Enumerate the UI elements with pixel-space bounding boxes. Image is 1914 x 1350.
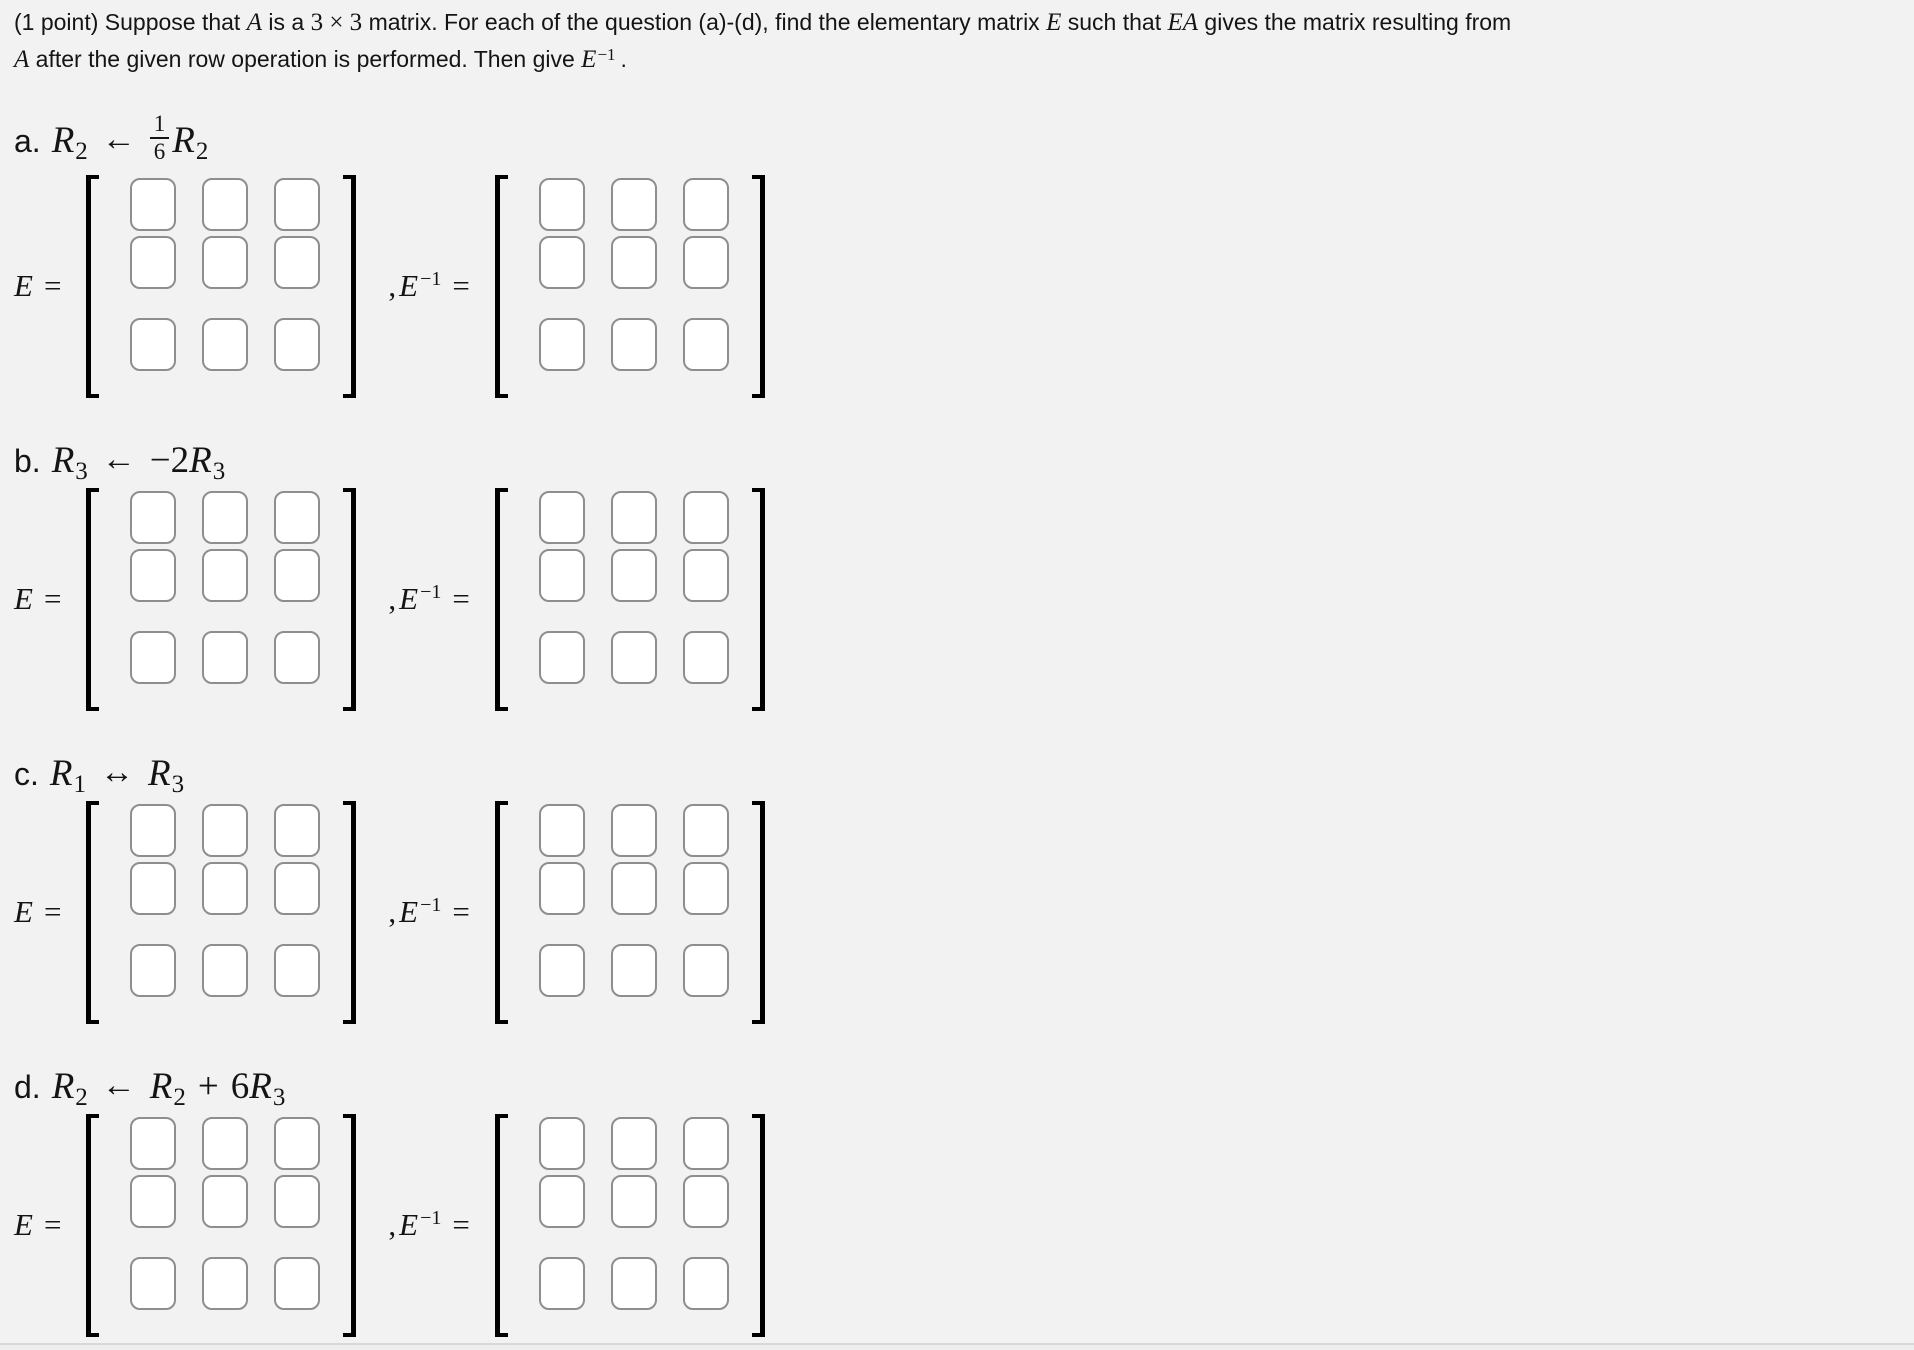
part-b: b.R3←−2R3 E= ,E−1=	[14, 442, 1914, 711]
matrix-cell-input[interactable]	[539, 1257, 585, 1310]
matrix-left-bracket	[86, 488, 99, 711]
statement-text: matrix. For each of the question (a)-(d)…	[362, 9, 1046, 35]
part-letter: d.	[14, 1069, 41, 1105]
math-subscript: 3	[213, 458, 226, 485]
matrix-cell-input[interactable]	[611, 1175, 657, 1228]
matrix-cell-input[interactable]	[130, 549, 176, 602]
answer-row-d: E= ,E−1=	[14, 1114, 1914, 1337]
matrix-cell-input[interactable]	[130, 318, 176, 371]
matrix-cell-input[interactable]	[611, 236, 657, 289]
matrix-cell-input[interactable]	[683, 862, 729, 915]
matrix-right-bracket	[343, 488, 356, 711]
matrix-cell-input[interactable]	[202, 944, 248, 997]
matrix-cell-input[interactable]	[274, 549, 320, 602]
E-inverse-equals-label: ,E−1=	[388, 1207, 469, 1243]
answer-row-c: E= ,E−1=	[14, 801, 1914, 1024]
matrix-cell-input[interactable]	[202, 549, 248, 602]
matrix-cell-input[interactable]	[274, 318, 320, 371]
problem-statement: (1 point) Suppose that A is a 3 × 3 matr…	[0, 0, 1914, 75]
matrix-cell-input[interactable]	[202, 318, 248, 371]
answer-row-a: E= ,E−1=	[14, 175, 1914, 398]
matrix-cell-input[interactable]	[539, 318, 585, 371]
matrix-left-bracket	[86, 1114, 99, 1337]
matrix-cell-input[interactable]	[274, 944, 320, 997]
matrix-cell-input[interactable]	[130, 944, 176, 997]
math-coefficient: 6	[231, 1066, 250, 1107]
math-symbol-A: A	[247, 9, 262, 36]
matrix-cell-input[interactable]	[683, 1257, 729, 1310]
fraction: 16	[150, 111, 170, 165]
matrix-cell-input[interactable]	[539, 1117, 585, 1170]
matrix-cell-input[interactable]	[202, 631, 248, 684]
math-subscript: 2	[75, 1084, 88, 1111]
math-R: R	[249, 1066, 272, 1107]
part-letter: a.	[14, 123, 41, 159]
left-arrow-icon: ←	[102, 121, 136, 158]
E-inverse-equals-label: ,E−1=	[388, 268, 469, 304]
matrix-cell-input[interactable]	[274, 491, 320, 544]
part-letter: b.	[14, 443, 41, 479]
matrix-cell-input[interactable]	[683, 1117, 729, 1170]
fraction-numerator: 1	[150, 111, 170, 139]
math-subscript: 2	[173, 1084, 186, 1111]
matrix-cell-input[interactable]	[130, 236, 176, 289]
matrix-E-b	[86, 488, 356, 711]
math-symbol-A: A	[14, 46, 29, 73]
matrix-cell-input[interactable]	[539, 1175, 585, 1228]
matrix-cell-input[interactable]	[202, 1117, 248, 1170]
part-d: d.R2←R2+6R3 E= ,E−1=	[14, 1068, 1914, 1337]
math-symbol-EA: EA	[1167, 9, 1198, 36]
part-a: a.R2←16R2 E= ,E−1=	[14, 117, 1914, 398]
matrix-cell-input[interactable]	[274, 862, 320, 915]
matrix-cell-input[interactable]	[539, 862, 585, 915]
math-subscript: 3	[172, 771, 185, 798]
fraction-denominator: 6	[150, 139, 170, 165]
matrix-cell-input[interactable]	[130, 1117, 176, 1170]
matrix-cell-input[interactable]	[202, 862, 248, 915]
part-c: c.R1↔R3 E= ,E−1=	[14, 755, 1914, 1024]
matrix-cell-input[interactable]	[202, 236, 248, 289]
matrix-cell-input[interactable]	[274, 1257, 320, 1310]
matrix-cell-input[interactable]	[130, 178, 176, 231]
matrix-cell-input[interactable]	[683, 318, 729, 371]
matrix-cell-input[interactable]	[130, 1257, 176, 1310]
matrix-left-bracket	[86, 175, 99, 398]
matrix-cell-input[interactable]	[202, 1257, 248, 1310]
matrix-right-bracket	[343, 801, 356, 1024]
matrix-right-bracket	[752, 801, 765, 1024]
matrix-cell-input[interactable]	[130, 804, 176, 857]
matrix-cell-input[interactable]	[611, 549, 657, 602]
matrix-cell-input[interactable]	[611, 491, 657, 544]
matrix-E-a	[86, 175, 356, 398]
matrix-cell-input[interactable]	[683, 1175, 729, 1228]
matrix-cell-input[interactable]	[274, 1117, 320, 1170]
matrix-cell-input[interactable]	[539, 491, 585, 544]
matrix-cell-input[interactable]	[202, 804, 248, 857]
matrix-cell-input[interactable]	[274, 631, 320, 684]
matrix-E-inverse-b	[495, 488, 765, 711]
matrix-right-bracket	[343, 1114, 356, 1337]
math-3x3: 3 × 3	[311, 9, 363, 36]
E-equals-label: E=	[14, 268, 61, 304]
matrix-right-bracket	[752, 488, 765, 711]
matrix-cell-input[interactable]	[274, 804, 320, 857]
matrix-left-bracket	[495, 488, 508, 711]
matrix-E-c	[86, 801, 356, 1024]
matrix-left-bracket	[495, 801, 508, 1024]
matrix-right-bracket	[343, 175, 356, 398]
matrix-cell-input[interactable]	[539, 236, 585, 289]
E-equals-label: E=	[14, 894, 61, 930]
math-symbol-E: E	[581, 46, 596, 73]
E-inverse-equals-label: ,E−1=	[388, 894, 469, 930]
math-R: R	[52, 440, 75, 481]
math-symbol-E: E	[1046, 9, 1061, 36]
E-equals-label: E=	[14, 581, 61, 617]
matrix-cell-input[interactable]	[202, 178, 248, 231]
matrix-cell-input[interactable]	[130, 491, 176, 544]
matrix-left-bracket	[86, 801, 99, 1024]
matrix-left-bracket	[495, 1114, 508, 1337]
matrix-E-inverse-d	[495, 1114, 765, 1337]
row-operation-label-d: d.R2←R2+6R3	[14, 1068, 1914, 1110]
matrix-cell-input[interactable]	[539, 944, 585, 997]
part-letter: c.	[14, 756, 39, 792]
math-R: R	[148, 753, 171, 794]
matrix-right-bracket	[752, 1114, 765, 1337]
matrix-cell-input[interactable]	[611, 178, 657, 231]
matrix-cell-input[interactable]	[130, 1175, 176, 1228]
math-exponent-neg1: −1	[597, 45, 615, 64]
matrix-cell-input[interactable]	[539, 631, 585, 684]
matrix-cell-input[interactable]	[202, 491, 248, 544]
statement-text: (1 point) Suppose that	[14, 9, 247, 35]
matrix-cell-input[interactable]	[130, 631, 176, 684]
statement-text: such that	[1061, 9, 1167, 35]
matrix-cell-input[interactable]	[611, 1117, 657, 1170]
row-operation-label-c: c.R1↔R3	[14, 755, 1914, 797]
math-R: R	[150, 1066, 173, 1107]
statement-text: is a	[262, 9, 311, 35]
matrix-left-bracket	[495, 175, 508, 398]
matrix-cell-input[interactable]	[130, 862, 176, 915]
matrix-cell-input[interactable]	[683, 804, 729, 857]
row-operation-label-b: b.R3←−2R3	[14, 442, 1914, 484]
matrix-cell-input[interactable]	[611, 1257, 657, 1310]
double-arrow-icon: ↔	[100, 754, 134, 791]
matrix-cell-input[interactable]	[683, 549, 729, 602]
matrix-cell-input[interactable]	[611, 631, 657, 684]
matrix-E-d	[86, 1114, 356, 1337]
left-arrow-icon: ←	[102, 1067, 136, 1104]
matrix-cell-input[interactable]	[274, 178, 320, 231]
statement-text: after the given row operation is perform…	[29, 46, 581, 72]
math-subscript: 3	[273, 1084, 286, 1111]
matrix-cell-input[interactable]	[611, 862, 657, 915]
statement-text: .	[621, 46, 627, 72]
statement-text: gives the matrix resulting from	[1198, 9, 1511, 35]
math-subscript: 2	[196, 138, 209, 165]
math-R: R	[52, 1066, 75, 1107]
math-coefficient: −2	[150, 440, 189, 481]
matrix-cell-input[interactable]	[274, 236, 320, 289]
math-R: R	[189, 440, 212, 481]
math-R: R	[172, 120, 195, 161]
math-R: R	[50, 753, 73, 794]
math-subscript: 2	[75, 138, 88, 165]
matrix-E-inverse-c	[495, 801, 765, 1024]
matrix-cell-input[interactable]	[274, 1175, 320, 1228]
matrix-cell-input[interactable]	[683, 631, 729, 684]
matrix-cell-input[interactable]	[683, 491, 729, 544]
plus-sign: +	[198, 1066, 219, 1107]
matrix-cell-input[interactable]	[202, 1175, 248, 1228]
matrix-right-bracket	[752, 175, 765, 398]
E-equals-label: E=	[14, 1207, 61, 1243]
matrix-cell-input[interactable]	[611, 944, 657, 997]
matrix-E-inverse-a	[495, 175, 765, 398]
math-subscript: 3	[75, 458, 88, 485]
matrix-cell-input[interactable]	[683, 236, 729, 289]
left-arrow-icon: ←	[102, 441, 136, 478]
bottom-scrollbar-track[interactable]	[0, 1343, 1914, 1350]
row-operation-label-a: a.R2←16R2	[14, 117, 1914, 171]
matrix-cell-input[interactable]	[683, 944, 729, 997]
answer-row-b: E= ,E−1=	[14, 488, 1914, 711]
matrix-cell-input[interactable]	[611, 804, 657, 857]
math-R: R	[52, 120, 75, 161]
matrix-cell-input[interactable]	[611, 318, 657, 371]
matrix-cell-input[interactable]	[539, 804, 585, 857]
matrix-cell-input[interactable]	[539, 549, 585, 602]
matrix-cell-input[interactable]	[683, 178, 729, 231]
matrix-cell-input[interactable]	[539, 178, 585, 231]
E-inverse-equals-label: ,E−1=	[388, 581, 469, 617]
math-subscript: 1	[74, 771, 87, 798]
